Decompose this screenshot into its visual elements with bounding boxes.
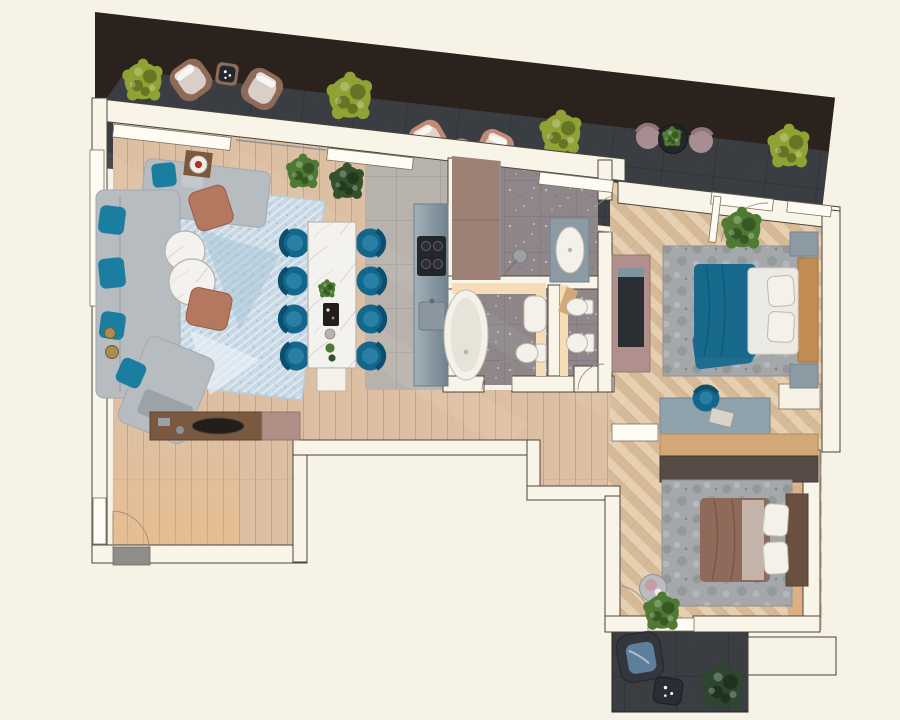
entry-door-mat	[113, 547, 150, 565]
bathtub-basin	[451, 298, 482, 372]
bed2-pillow-1	[763, 503, 789, 537]
dining-greens-2	[328, 354, 335, 361]
toilet-2	[567, 334, 595, 353]
corridor-void-wall	[293, 440, 307, 562]
left-margin	[0, 0, 95, 720]
tv-panel	[618, 275, 644, 347]
bed1-pillow-2	[767, 311, 795, 342]
sofa-pillow-1	[151, 162, 177, 188]
dining-end-bench	[317, 368, 346, 391]
floor-candle-2	[106, 346, 119, 359]
balcony-armchair	[614, 630, 666, 685]
floor-plan-stage	[0, 0, 900, 720]
corner-side-table	[183, 150, 213, 178]
dining-chair-5	[356, 229, 385, 258]
tv-unit-top-shelf	[618, 268, 644, 277]
bedroom2-bottom-wall-a	[605, 616, 650, 632]
bed1-blanket-drape	[692, 329, 754, 370]
nightstand-1	[790, 232, 818, 256]
left-wall-window-lower	[93, 498, 106, 544]
console-tray	[192, 418, 244, 434]
sofa-pillow-4	[98, 257, 127, 290]
console-sideboard	[150, 412, 300, 440]
cooktop	[417, 236, 446, 276]
shelf-band	[660, 434, 818, 456]
balcony-side-table	[652, 676, 683, 706]
bed1-headboard	[798, 258, 818, 362]
burner-4	[433, 259, 442, 268]
washbasin-2	[524, 296, 546, 332]
desk-chair	[693, 385, 720, 412]
dining-greens-1	[325, 343, 334, 352]
burner-3	[421, 259, 430, 268]
dining-candle	[325, 329, 335, 339]
dining-chair-6	[357, 267, 386, 296]
dining-chair-2	[280, 267, 309, 296]
dining-chair-3	[280, 305, 309, 334]
bed2-linen-fold	[742, 500, 764, 580]
kitchen-counter	[414, 204, 448, 386]
burner-1	[421, 241, 430, 250]
tv-wall-unit	[612, 255, 650, 372]
bedroom2-bottom-wall-b	[693, 616, 820, 632]
dining-chair-8	[356, 342, 385, 371]
right-outer-wall-upper	[822, 209, 840, 452]
sofa-pillow-3	[97, 205, 126, 236]
floor-plan-svg	[0, 0, 900, 720]
console-mauve-section	[262, 412, 300, 440]
shower-zone-tiles	[452, 156, 500, 280]
dining-chair-7	[357, 305, 386, 334]
console-decor-box	[158, 418, 170, 426]
nightstand-2	[790, 364, 818, 388]
side-table-decor	[645, 579, 657, 591]
void-step-wall-v	[527, 440, 540, 492]
dining-chair-1	[281, 229, 310, 258]
dining-table-tray	[323, 303, 339, 326]
bath-bottom-wall-b	[512, 376, 576, 392]
toilet-1	[516, 344, 546, 363]
bedroom2-left-wall	[605, 496, 620, 632]
console-decor-bowl	[176, 426, 184, 434]
kitchen-faucet	[430, 299, 435, 304]
bed2-pillow-2	[763, 541, 789, 574]
wardrobe-band	[660, 456, 818, 482]
burner-2	[433, 241, 442, 250]
bidet	[567, 299, 594, 316]
pouf-2	[185, 286, 234, 332]
bed-2	[700, 494, 808, 586]
void-top-wall	[293, 440, 540, 455]
floor-candle-1	[105, 328, 116, 339]
kitchen	[414, 204, 448, 386]
right-margin	[839, 0, 900, 720]
bath-right-wall-bottom	[598, 232, 612, 392]
terrace-side-table-1	[215, 62, 240, 87]
bathtub-drain	[464, 350, 469, 355]
bed1-pillow-1	[767, 275, 795, 307]
washbasin-1-drain	[568, 248, 572, 252]
bedroom2-sliding-door	[612, 424, 658, 441]
dining-area	[280, 222, 386, 391]
dining-chair-4	[282, 342, 311, 371]
